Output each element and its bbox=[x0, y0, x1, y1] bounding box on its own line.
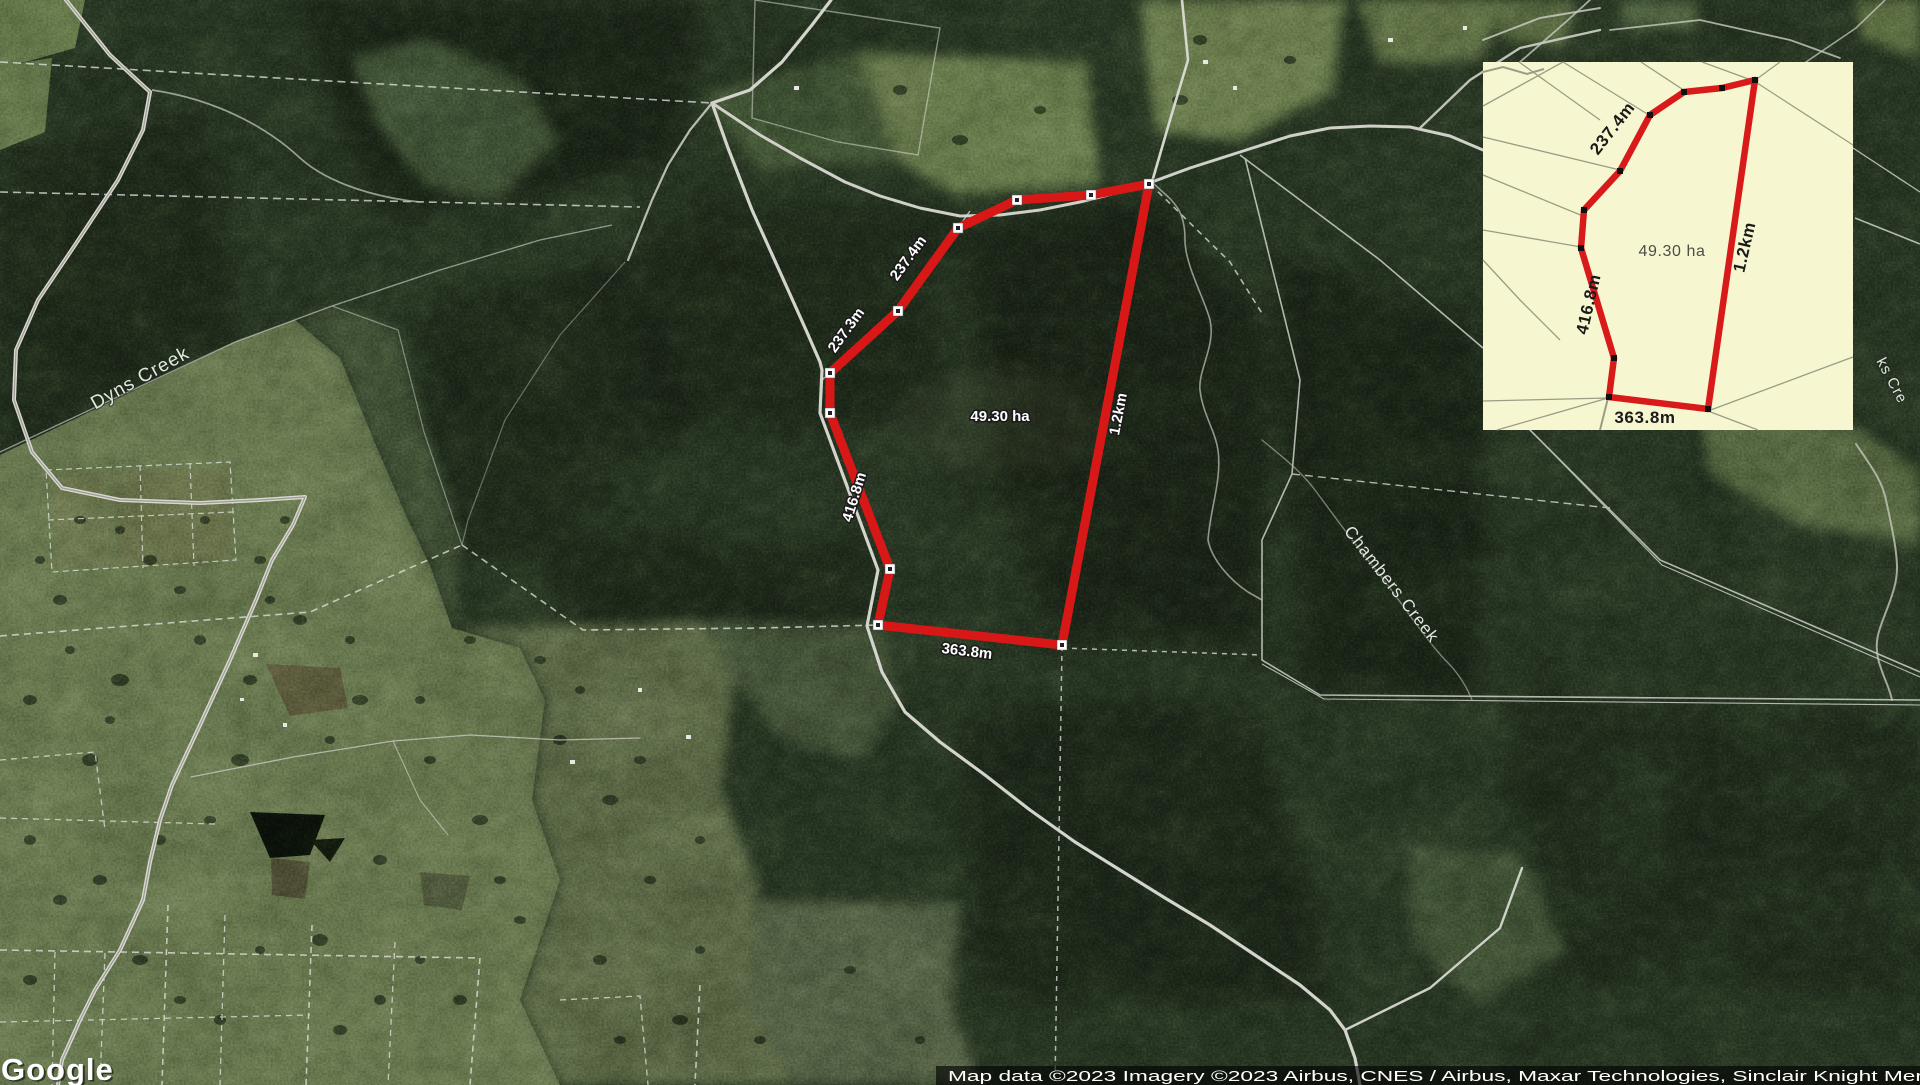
svg-text:Map data ©2023 Imagery ©2023 A: Map data ©2023 Imagery ©2023 Airbus, CNE… bbox=[948, 1069, 1920, 1085]
svg-text:363.8m: 363.8m bbox=[1614, 408, 1675, 427]
svg-text:49.30 ha: 49.30 ha bbox=[970, 408, 1030, 425]
svg-text:Google: Google bbox=[1, 1052, 114, 1085]
svg-text:49.30 ha: 49.30 ha bbox=[1638, 243, 1705, 260]
